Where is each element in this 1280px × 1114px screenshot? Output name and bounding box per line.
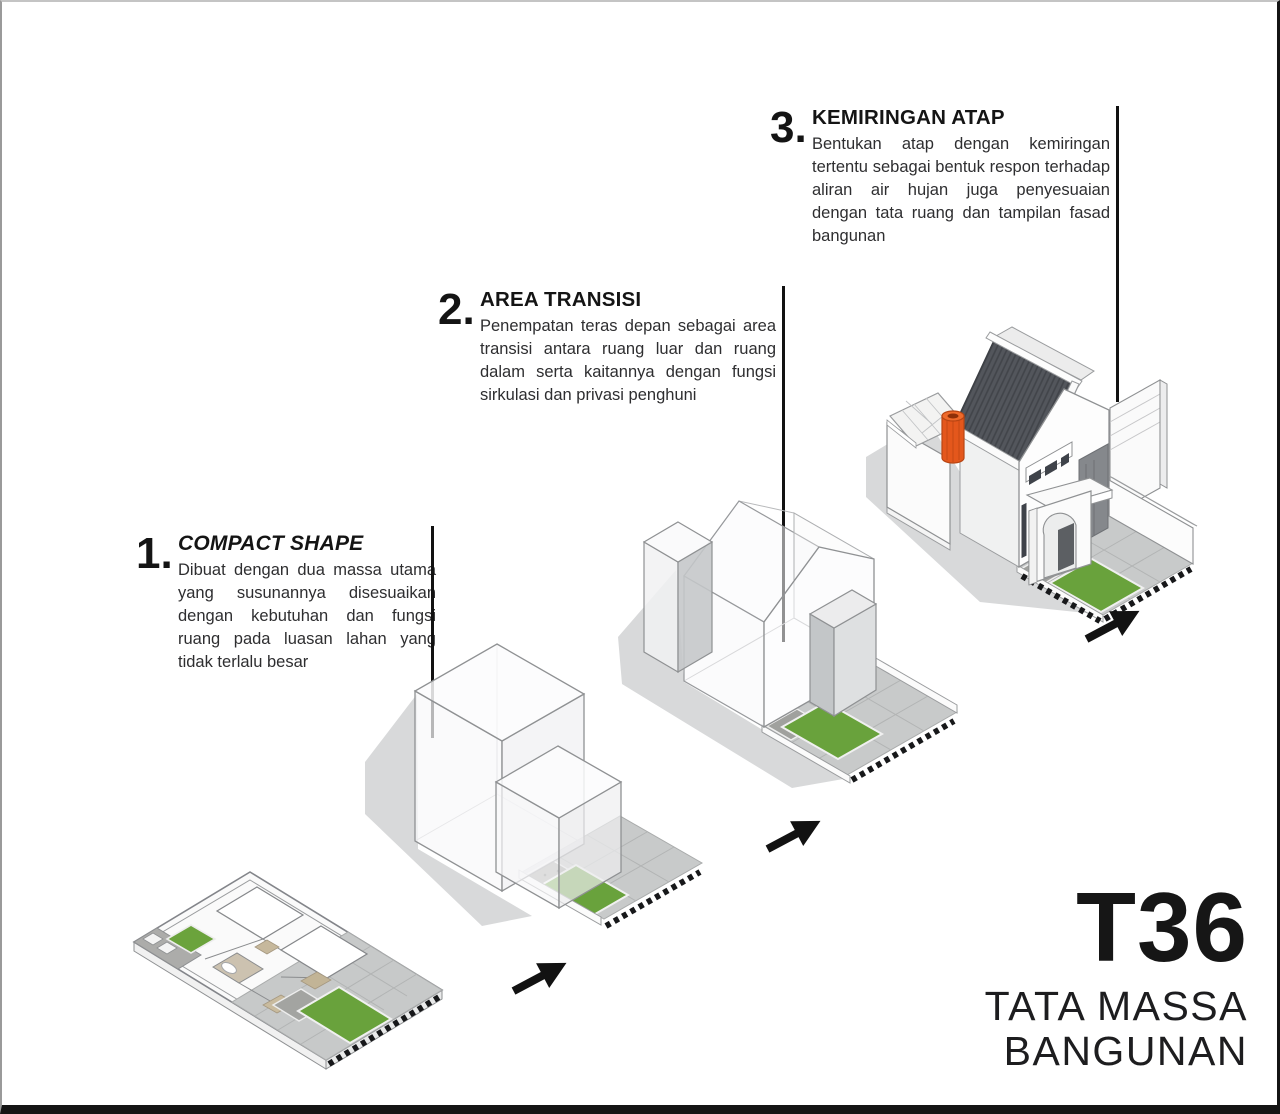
annotation-1-number: 1. [136, 532, 173, 576]
subtitle-line-1: TATA MASSA [882, 984, 1248, 1029]
annotation-2-body: Penempatan teras depan sebagai area tran… [480, 315, 776, 407]
annotation-3-title: KEMIRINGAN ATAP [812, 106, 1110, 130]
presentation-slide: 3. KEMIRINGAN ATAP Bentukan atap dengan … [0, 0, 1280, 1114]
annotation-roof-slope: 3. KEMIRINGAN ATAP Bentukan atap dengan … [770, 106, 1110, 248]
model-final-house [860, 292, 1205, 642]
subtitle-line-2: BANGUNAN [882, 1029, 1248, 1074]
annotation-1-title: COMPACT SHAPE [178, 532, 436, 556]
progress-arrow-icon [1078, 600, 1148, 650]
annotation-2-number: 2. [438, 288, 475, 332]
progress-arrow-icon [505, 952, 575, 1002]
progress-arrow-icon [759, 810, 829, 860]
annotation-transition-area: 2. AREA TRANSISI Penempatan teras depan … [438, 288, 776, 407]
annotation-3-body: Bentukan atap dengan kemiringan tertentu… [812, 133, 1110, 248]
annotation-3-number: 3. [770, 106, 807, 150]
annotation-2-title: AREA TRANSISI [480, 288, 776, 312]
project-code: T36 [882, 878, 1248, 976]
title-block: T36 TATA MASSA BANGUNAN [882, 878, 1248, 1074]
